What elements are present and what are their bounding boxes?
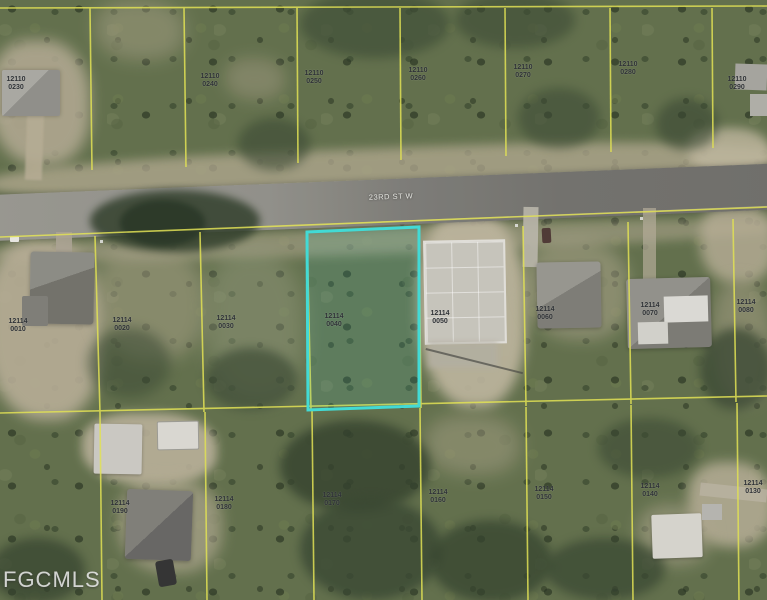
house-roof-white-section	[638, 322, 669, 345]
tree-cluster	[430, 520, 552, 600]
construction-slab	[423, 239, 507, 344]
house-roof	[2, 70, 60, 116]
house-roof	[750, 94, 767, 116]
cleared-area	[95, 0, 185, 60]
car	[542, 228, 552, 243]
tree-cluster	[120, 200, 205, 246]
house-roof	[735, 63, 767, 90]
house-roof	[94, 424, 143, 475]
house-roof	[125, 489, 193, 561]
tree-cluster	[545, 538, 665, 600]
driveway	[643, 208, 656, 280]
tree-cluster	[598, 418, 700, 478]
trailer	[157, 421, 199, 451]
cleared-area	[425, 415, 520, 475]
cleared-area	[225, 58, 285, 100]
tree-cluster	[238, 118, 310, 170]
house-roof	[536, 261, 601, 328]
driveway	[522, 207, 538, 267]
house-roof	[22, 296, 48, 326]
driveway	[25, 112, 44, 181]
cleared-area	[700, 203, 767, 283]
shed-roof	[702, 504, 722, 520]
mailbox	[100, 240, 103, 243]
tree-cluster	[518, 88, 600, 148]
tree-cluster	[300, 498, 442, 600]
tree-cluster	[205, 348, 297, 410]
mailbox	[640, 217, 643, 220]
car	[10, 236, 19, 242]
mls-watermark: FGCMLS	[3, 567, 101, 593]
tree-cluster	[88, 328, 170, 398]
tree-cluster	[656, 98, 718, 150]
house-roof-white-section	[664, 295, 709, 322]
aerial-photo: 12110 0230 12110 0240 12110 0250 12110 0…	[0, 0, 767, 600]
mailbox	[515, 224, 518, 227]
shed-roof	[651, 513, 703, 559]
